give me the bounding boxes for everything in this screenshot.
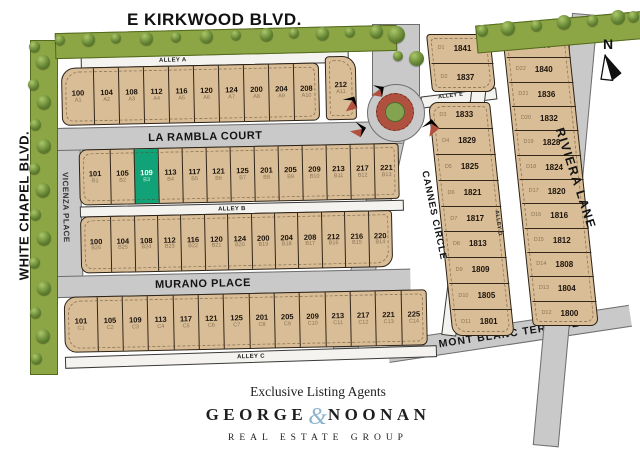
lot-A5: 116A5 [168,66,194,123]
lot-D9: D91809 [447,257,507,283]
lot-B13: 221B13 [373,144,398,198]
tree-icon [82,33,95,46]
lot-number: 105 [104,317,117,325]
lot-number: 217 [356,164,369,172]
lot-B10: 209B10 [301,145,326,199]
lot-number: 1813 [469,241,487,249]
lot-number: 209 [306,313,319,321]
lot-D12: D121800 [532,301,596,325]
lot-B4: 113B4 [158,148,183,202]
lot-code: D10 [458,294,468,300]
block-row-a: 100A1104A2108A3112A4116A5120A6124A7200A8… [61,63,320,126]
tree-icon [501,21,515,35]
lot-B11: 213B11 [325,145,350,199]
lot-C6: 121C6 [198,295,224,350]
tree-icon [388,26,405,43]
lot-code: B25 [118,246,128,252]
lot-B25: 104B25 [110,216,135,271]
lot-number: 116 [175,87,187,95]
lot-B5: 117B5 [182,148,207,202]
lot-B17: 208B17 [297,213,322,268]
tree-icon [37,139,51,153]
lot-B16: 212B16 [321,212,346,267]
lot-B8: 201B8 [253,146,278,200]
lot-number: 212 [334,81,347,89]
lot-code: D7 [450,216,457,222]
lot-code: B22 [188,244,198,250]
lot-code: A7 [228,95,235,101]
lot-code: B1 [92,179,99,185]
lot-code: B18 [282,242,292,248]
lot-A9: 204A9 [268,64,294,121]
lot-number: 213 [332,165,345,173]
lot-number: 1805 [478,293,496,301]
lot-code: A6 [203,95,210,101]
lot-number: 1829 [458,137,476,145]
lot-number: 201 [256,314,269,322]
lot-code: B9 [287,175,294,181]
lot-C12: 217C12 [350,291,376,346]
lot-code: D3 [439,113,446,119]
lot-code: B10 [310,174,320,180]
lot-number: 213 [332,312,345,320]
lot-code: C12 [358,320,368,326]
lot-code: C11 [333,321,343,327]
street-label-kirkwood: E KIRKWOOD BLVD. [127,10,302,30]
lot-C4: 113C4 [147,296,173,351]
lot-code: D6 [448,190,455,196]
lot-code: B15 [352,241,362,247]
lot-D15: D151812 [525,228,589,252]
tree-icon [171,32,181,42]
lot-code: C3 [132,325,139,331]
branding-name-last: NOONAN [328,405,431,424]
lot-B14: 220B14 [368,211,393,266]
lot-number: 209 [308,165,321,173]
tree-icon [111,33,121,43]
lot-number: 125 [230,314,243,322]
block-row-b-upper: 101B1105B2109B3113B4117B5121B6125B7201B8… [79,143,400,206]
lot-B19: 200B19 [251,213,276,268]
lot-number: 104 [100,89,113,97]
lot-B20: 124B20 [227,214,252,269]
tree-icon [37,95,51,109]
lot-number: 1809 [472,267,490,275]
lot-A4: 112A4 [143,67,169,124]
lot-B3: 109B3 [134,149,159,203]
lot-D16: D161816 [522,203,586,227]
lot-code: C14 [409,319,419,325]
lot-code: B20 [235,243,245,249]
lot-code: B2 [119,178,126,184]
lot-number: 108 [125,88,138,96]
lot-code: B17 [305,242,315,248]
lot-number: 101 [89,170,102,178]
lot-D13: D131804 [530,276,594,300]
block-row-b-lower: 100B26104B25108B24112B23116B22120B21124B… [80,210,393,274]
lot-number: 125 [236,167,249,175]
lot-D3: D31833 [430,103,490,128]
lot-code: B4 [167,177,174,183]
lot-A2: 104A2 [93,68,119,125]
tree-icon [36,183,50,197]
lot-D21: D211836 [509,82,573,106]
tree-icon [231,30,241,40]
tree-icon [140,32,153,45]
lot-code: B13 [382,173,392,179]
branding-ampersand-icon: & [308,404,327,430]
tree-icon [557,15,571,29]
lot-number: 112 [150,88,162,96]
tree-icon [409,51,424,66]
alley-label-a: ALLEY A [159,57,187,64]
tree-icon [477,25,488,36]
lot-code: D9 [456,268,463,274]
lot-number: 200 [250,86,263,94]
lot-number: 221 [380,164,393,172]
tree-icon [316,27,329,40]
lot-code: D12 [541,311,551,317]
lot-D4: D41829 [433,128,493,154]
lot-code: B11 [334,174,344,180]
lot-number: 113 [155,316,167,324]
lot-number: 1841 [454,45,472,53]
lot-number: 1817 [466,215,484,223]
lot-code: C9 [284,322,291,328]
lot-code: A8 [253,94,260,100]
lot-number: 120 [200,87,213,95]
lot-A10: 208A10 [293,64,319,121]
tree-icon [31,353,42,364]
lot-code: C4 [157,324,164,330]
tree-icon [345,27,355,37]
lot-code: B23 [165,245,175,251]
lot-B23: 112B23 [157,215,182,270]
lot-B24: 108B24 [134,216,159,271]
lot-code: D14 [536,262,546,268]
lot-number: 205 [284,166,297,174]
lot-B15: 216B15 [344,212,369,267]
lot-code: B12 [358,173,368,179]
lot-code: D19 [524,140,534,146]
plat-map: E KIRKWOOD BLVD. WHITE CHAPEL BLVD. CANN… [0,0,640,454]
lot-code: A2 [103,97,110,103]
lot-code: D20 [521,116,531,122]
lot-code: A11 [336,89,346,95]
lot-D22: D221840 [507,57,571,81]
lot-D2: D21837 [431,63,493,92]
lot-C8: 201C8 [248,294,274,349]
alley-label-b: ALLEY B [218,206,246,213]
lot-C3: 109C3 [122,296,148,351]
lot-code: B19 [258,243,268,249]
lot-code: A5 [178,96,185,102]
traffic-island [371,85,384,97]
lot-C14: 225C14 [400,290,426,345]
branding-name-first: GEORGE [206,405,308,424]
lot-number: 1824 [545,163,563,171]
lot-code: D18 [526,165,536,171]
lot-code: D15 [534,238,544,244]
lot-code: B3 [143,178,150,184]
lot-number: 217 [357,312,370,320]
lot-number: 109 [129,316,142,324]
tree-icon [531,20,542,31]
lot-A11: 212A11 [326,57,356,120]
lot-A8: 200A8 [243,65,269,122]
tree-icon [611,10,625,24]
lot-code: B14 [375,240,385,246]
lot-code: B6 [215,176,222,182]
alley-label-c: ALLEY C [237,354,265,361]
lot-B1: 101B1 [80,150,111,205]
tree-icon [30,307,41,318]
lot-number: 1840 [535,66,553,74]
lot-number: 121 [212,168,225,176]
lot-number: 121 [205,315,218,323]
lot-C1: 101C1 [65,297,98,352]
lot-number: 1808 [555,261,573,269]
lot-number: 1832 [540,115,558,123]
lot-B26: 100B26 [81,217,111,273]
lot-D10: D101805 [449,283,509,309]
lot-number: 201 [260,167,273,175]
lot-A3: 108A3 [118,67,144,124]
lot-code: D11 [461,320,471,326]
tree-icon [587,15,598,26]
lot-number: 208 [300,85,313,93]
tree-icon [370,25,383,38]
lot-C2: 105C2 [96,297,122,352]
lot-number: 1801 [480,319,498,327]
lot-B7: 125B7 [229,147,254,201]
tree-icon [28,79,39,90]
lot-code: C2 [107,325,114,331]
lot-number: 204 [275,85,288,93]
lot-number: 1821 [464,189,482,197]
lot-code: C1 [78,326,85,332]
lot-number: 205 [281,313,294,321]
lot-number: 1825 [461,163,479,171]
lot-code: A10 [302,93,312,99]
lot-code: D16 [531,213,541,219]
lot-code: C8 [259,322,266,328]
tree-icon [29,41,40,52]
lot-number: 1820 [548,188,566,196]
lot-B22: 116B22 [180,215,205,270]
lot-C9: 205C9 [274,293,300,348]
lot-code: A9 [278,94,285,100]
lot-code: C10 [308,321,318,327]
lot-B6: 121B6 [205,147,230,201]
lot-code: D22 [516,67,526,73]
tree-icon [37,281,51,295]
lot-code: C6 [208,323,215,329]
lot-code: B8 [263,175,270,181]
lot-C11: 213C11 [324,292,350,347]
lot-code: D13 [539,286,549,292]
lot-number: 1833 [455,111,473,119]
lot-code: D8 [453,242,460,248]
lot-number: 117 [188,168,200,176]
block-row-c: 101C1105C2109C3113C4117C5121C6125C7201C8… [64,289,428,353]
street-label-white-chapel: WHITE CHAPEL BLVD. [17,116,32,296]
lot-code: C13 [384,320,394,326]
lot-C7: 125C7 [223,294,249,349]
listing-branding: Exclusive Listing Agents GEORGE&NOONAN R… [138,384,498,443]
lot-code: D4 [442,139,449,145]
street-label-la-rambla: LA RAMBLA COURT [148,129,262,143]
lot-number: 1804 [558,285,576,293]
lot-number: 225 [408,310,421,318]
compass-label: N [603,36,613,52]
block-lot-212: 212A11 [325,56,357,121]
tree-icon [36,55,50,69]
lot-code: B16 [329,241,339,247]
lot-B2: 105B2 [110,149,135,203]
tree-icon [55,35,65,45]
lot-number: 109 [140,169,153,177]
lot-code: B7 [239,176,246,182]
lot-code: A3 [128,97,135,103]
lot-A7: 124A7 [218,65,244,122]
tree-icon [393,51,403,61]
lot-code: B5 [191,177,198,183]
lot-number: 1816 [550,212,568,220]
lot-D14: D141808 [527,252,591,276]
lot-B18: 204B18 [274,213,299,268]
lot-B12: 217B12 [349,144,374,198]
lot-C13: 221C13 [375,291,401,346]
branding-tagline: Exclusive Listing Agents [138,384,498,400]
lot-code: D21 [518,92,528,98]
lot-D11: D111801 [452,309,512,335]
lot-code: B21 [212,244,222,250]
lot-code: C7 [233,323,240,329]
lot-code: D5 [445,164,452,170]
lot-D5: D51825 [436,154,496,180]
lot-A1: 100A1 [62,68,94,125]
lot-number: 113 [164,169,176,177]
lot-A6: 120A6 [193,66,219,123]
lot-code: A4 [153,96,160,102]
lot-code: D17 [529,189,539,195]
lot-number: 221 [382,311,395,319]
lot-number: 101 [75,317,88,325]
lot-number: 1836 [537,90,555,98]
tree-icon [37,231,51,245]
branding-subtitle: REAL ESTATE GROUP [138,433,498,443]
lot-number: 100 [72,89,85,97]
branding-name: GEORGE&NOONAN [138,404,498,431]
lot-code: B24 [141,245,151,251]
tree-strip-left [30,40,58,375]
roundabout-island [385,102,405,122]
lot-C10: 209C10 [299,292,325,347]
lot-number: 1837 [457,73,475,81]
lot-code: A1 [75,98,82,104]
lot-B21: 120B21 [204,214,229,269]
tree-icon [628,11,639,22]
lot-code: B26 [91,246,101,252]
tree-icon [36,329,50,343]
lot-C5: 117C5 [172,295,198,350]
lot-code: C5 [183,324,190,330]
lot-number: 1812 [553,236,571,244]
lot-number: 124 [225,86,238,94]
lot-number: 117 [180,315,192,323]
lot-B9: 205B9 [277,146,302,200]
lot-number: 105 [116,170,129,178]
lot-number: 1800 [560,309,578,317]
lot-D8: D81813 [444,231,504,257]
street-label-murano: MURANO PLACE [155,277,251,291]
lot-code: D1 [438,46,445,52]
lot-code: D2 [440,75,447,81]
tree-icon [200,30,213,43]
